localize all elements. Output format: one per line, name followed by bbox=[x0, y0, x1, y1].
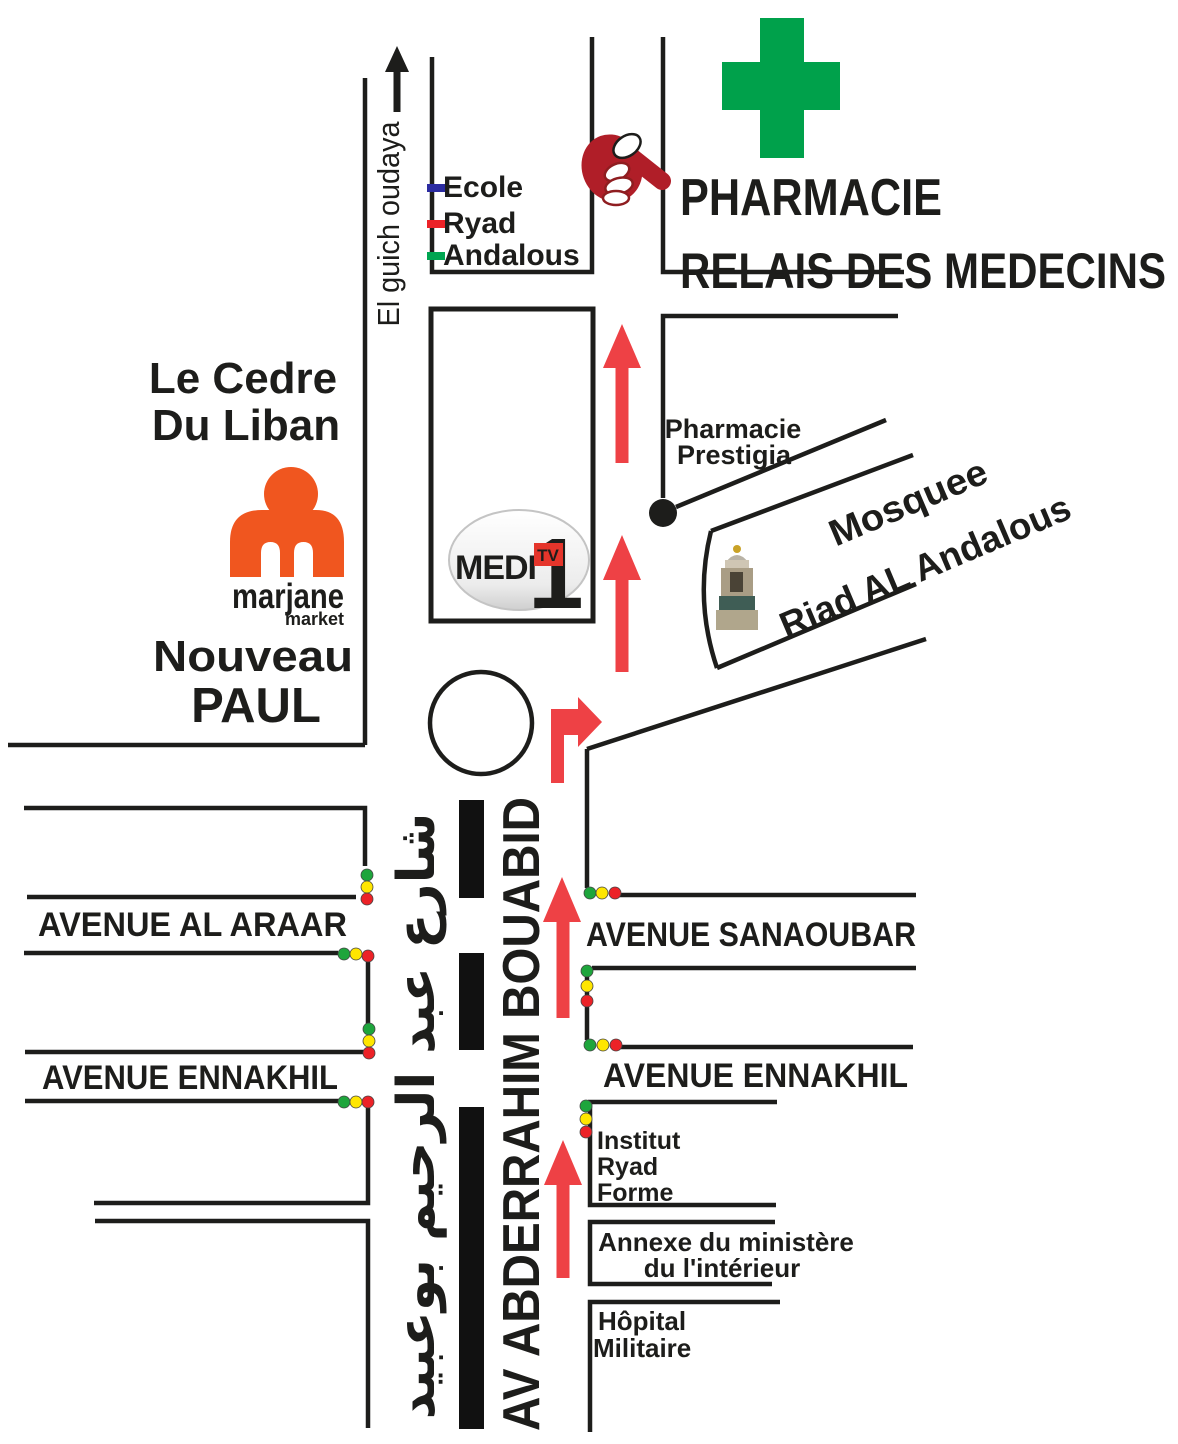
pharmacy-title-line1: PHARMACIE bbox=[680, 169, 942, 227]
direction-up-arrow-icon bbox=[385, 46, 409, 112]
road-line bbox=[587, 639, 926, 749]
medi1-logo: MEDI 1 TV bbox=[449, 510, 589, 630]
marjane-sub: market bbox=[285, 609, 344, 629]
legend-label-andalous: Andalous bbox=[443, 239, 580, 272]
landmark-nouveau: Nouveau bbox=[153, 632, 353, 681]
street-label-avenue-ennakhil-right: AVENUE ENNAKHIL bbox=[603, 1057, 908, 1095]
road-line bbox=[704, 531, 717, 668]
route-arrow-up bbox=[603, 535, 641, 672]
street-label-av-abderrahim-bouabid: AV ABDERRAHIM BOUABID bbox=[493, 797, 551, 1431]
legend: Ecole Ryad Andalous bbox=[427, 171, 580, 272]
road-median-bar bbox=[459, 953, 484, 1050]
landmark-annexe-line2: du l'intérieur bbox=[644, 1253, 800, 1283]
landmark-le-cedre-line1: Le Cedre bbox=[149, 354, 337, 403]
map-canvas: PHARMACIE RELAIS DES MEDECINS Ecole Ryad… bbox=[0, 0, 1178, 1444]
street-label-el-guich-oudaya: El guich oudaya bbox=[371, 121, 406, 327]
traffic-light bbox=[363, 1023, 375, 1059]
road-line bbox=[95, 1221, 368, 1428]
marjane-logo: marjane market bbox=[230, 467, 344, 629]
pharmacy-header: PHARMACIE RELAIS DES MEDECINS bbox=[680, 18, 1166, 299]
landmark-institut-line2: Ryad bbox=[597, 1153, 658, 1181]
route-arrow-up bbox=[603, 324, 641, 463]
traffic-light bbox=[580, 1100, 592, 1138]
street-label-avenue-sanaoubar: AVENUE SANAOUBAR bbox=[586, 916, 916, 954]
pharmacy-direction-map: PHARMACIE RELAIS DES MEDECINS Ecole Ryad… bbox=[0, 0, 1178, 1444]
pharmacy-title-line2: RELAIS DES MEDECINS bbox=[680, 243, 1166, 299]
road-median-bar bbox=[459, 1107, 484, 1429]
medi1-tv: TV bbox=[537, 546, 559, 565]
road-line bbox=[663, 316, 898, 498]
traffic-light bbox=[338, 1096, 374, 1108]
traffic-light bbox=[361, 869, 373, 905]
medi1-text: MEDI bbox=[455, 549, 536, 587]
landmark-le-cedre-line2: Du Liban bbox=[152, 401, 340, 450]
mosque-minaret-image bbox=[716, 545, 758, 630]
landmark-hopital-line1: Hôpital bbox=[598, 1306, 686, 1336]
marjane-m-icon bbox=[230, 510, 344, 577]
traffic-light bbox=[581, 965, 593, 1007]
legend-label-ecole: Ecole bbox=[443, 171, 523, 204]
traffic-light bbox=[338, 948, 374, 962]
pharmacy-cross-icon bbox=[722, 18, 840, 158]
landmark-institut-line3: Forme bbox=[597, 1179, 674, 1207]
road-line bbox=[24, 808, 365, 866]
landmark-prestigia-line2: Prestigia bbox=[677, 440, 792, 470]
medi1-one: 1 bbox=[528, 518, 584, 630]
landmark-paul: PAUL bbox=[191, 679, 321, 733]
roundabout bbox=[430, 672, 532, 774]
pointing-hand-icon bbox=[572, 126, 662, 210]
pharmacie-prestigia-marker-dot bbox=[649, 499, 677, 527]
route-arrow-turn-right bbox=[551, 697, 602, 783]
traffic-light bbox=[584, 1039, 622, 1051]
landmark-institut-line1: Institut bbox=[597, 1127, 681, 1155]
street-label-arabic: شارع عبد الرحيم بوعبيد bbox=[387, 813, 447, 1420]
road-median-bar bbox=[459, 800, 484, 898]
landmark-hopital-line2: Militaire bbox=[593, 1333, 691, 1363]
legend-label-ryad: Ryad bbox=[443, 207, 516, 240]
street-label-avenue-al-araar: AVENUE AL ARAAR bbox=[38, 906, 347, 944]
traffic-light bbox=[584, 887, 621, 899]
street-label-avenue-ennakhil-left: AVENUE ENNAKHIL bbox=[42, 1059, 338, 1097]
road-line bbox=[94, 1101, 368, 1203]
